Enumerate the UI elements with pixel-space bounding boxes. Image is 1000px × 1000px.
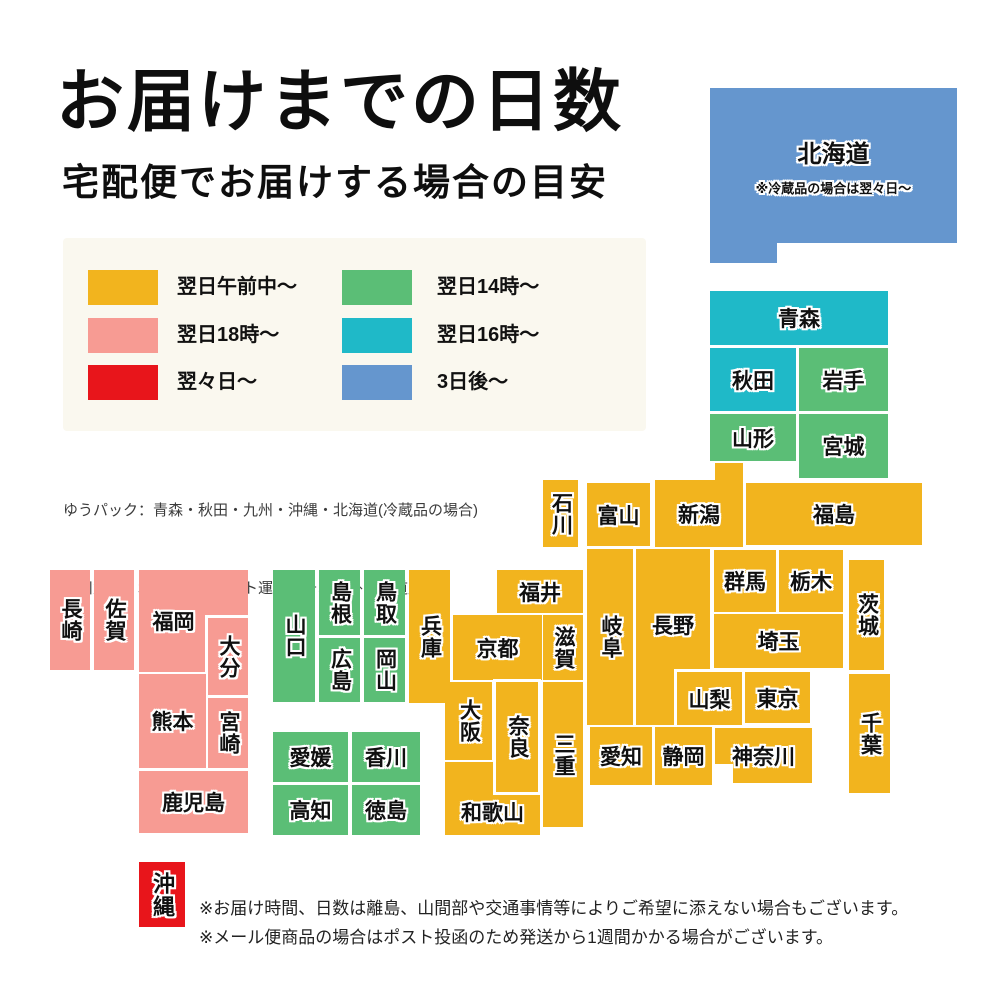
delivery-days-infographic: お届けまでの日数 宅配便でお届けする場合の目安 翌日午前中〜翌日18時〜翌々日〜… xyxy=(0,0,1000,1000)
pref-block-hyogo: 兵庫 xyxy=(409,570,450,703)
pref-block-tokushima: 徳島 xyxy=(352,785,420,835)
pref-label-kumamoto: 熊本 xyxy=(152,706,194,736)
pref-block-nara: 奈良 xyxy=(493,679,541,795)
pref-label-fukui: 福井 xyxy=(519,577,561,607)
pref-label-osaka: 大阪 xyxy=(454,699,484,743)
pref-block-fukushima: 福島 xyxy=(746,483,922,545)
japan-map: 北海道※冷蔵品の場合は翌々日〜青森秋田岩手山形宮城新潟石川富山福島福井岐阜長野群… xyxy=(0,0,1000,1000)
pref-block-miyagi: 宮城 xyxy=(799,414,888,478)
pref-block-okinawa: 沖縄 xyxy=(139,862,185,927)
footer-note-line: ※メール便商品の場合はポスト投函のため発送から1週間かかる場合がございます。 xyxy=(199,923,908,952)
pref-label-ibaraki: 茨城 xyxy=(852,593,882,637)
pref-label-yamanashi: 山梨 xyxy=(689,684,731,714)
pref-block-shizuoka: 静岡 xyxy=(655,727,712,785)
pref-label-iwate: 岩手 xyxy=(823,365,865,395)
pref-block-ehime: 愛媛 xyxy=(273,732,348,782)
pref-block-hokkaido: 北海道※冷蔵品の場合は翌々日〜 xyxy=(710,88,957,243)
pref-label-kagawa: 香川 xyxy=(365,742,407,772)
pref-label-miyagi: 宮城 xyxy=(823,431,865,461)
pref-label-okinawa: 沖縄 xyxy=(146,872,178,918)
pref-block-mie: 三重 xyxy=(543,682,583,827)
pref-block-niigata: 新潟 xyxy=(655,480,743,547)
pref-label-niigata: 新潟 xyxy=(678,499,720,529)
pref-label-tokushima: 徳島 xyxy=(365,795,407,825)
pref-block-toyama: 富山 xyxy=(587,483,650,546)
pref-block-chiba: 千葉 xyxy=(849,674,890,793)
pref-label-mie: 三重 xyxy=(548,733,578,777)
pref-label-kagoshima: 鹿児島 xyxy=(162,787,225,817)
pref-block-kochi: 高知 xyxy=(273,785,348,835)
pref-label-tochigi: 栃木 xyxy=(790,566,832,596)
pref-block-hiroshima: 広島 xyxy=(319,638,360,702)
pref-label-hokkaido: 北海道 xyxy=(798,134,870,169)
pref-block-okayama: 岡山 xyxy=(364,638,405,702)
pref-label-tottori: 鳥取 xyxy=(370,581,400,625)
pref-block-yamanashi: 山梨 xyxy=(674,669,745,728)
pref-block-osaka: 大阪 xyxy=(445,682,492,760)
pref-label-ehime: 愛媛 xyxy=(290,742,332,772)
pref-block-ibaraki: 茨城 xyxy=(849,560,884,670)
pref-kanagawa-sea-notch xyxy=(715,764,733,783)
pref-block-iwate: 岩手 xyxy=(799,348,888,411)
pref-label-saga: 佐賀 xyxy=(99,598,129,642)
pref-label-hyogo: 兵庫 xyxy=(415,615,445,659)
pref-note-hokkaido: ※冷蔵品の場合は翌々日〜 xyxy=(756,178,912,197)
pref-label-hiroshima: 広島 xyxy=(325,648,355,692)
pref-label-kyoto: 京都 xyxy=(477,633,519,663)
pref-block-tottori: 鳥取 xyxy=(364,570,405,635)
pref-label-kochi: 高知 xyxy=(290,795,332,825)
footer-notes: ※お届け時間、日数は離島、山間部や交通事情等によりご希望に添えない場合もございま… xyxy=(199,894,908,952)
pref-block-oita: 大分 xyxy=(205,615,251,698)
pref-block-nagasaki: 長崎 xyxy=(50,570,90,670)
pref-label-shiga: 滋賀 xyxy=(548,626,578,670)
pref-block-kyoto: 京都 xyxy=(453,615,542,680)
pref-label-chiba: 千葉 xyxy=(855,712,885,756)
pref-block-kagoshima: 鹿児島 xyxy=(139,771,248,833)
pref-block-aomori: 青森 xyxy=(710,291,888,345)
pref-label-oita: 大分 xyxy=(213,635,243,679)
footer-note-line: ※お届け時間、日数は離島、山間部や交通事情等によりご希望に添えない場合もございま… xyxy=(199,894,908,923)
pref-block-fukui: 福井 xyxy=(497,570,583,613)
pref-block-gifu: 岐阜 xyxy=(587,549,633,725)
pref-block-tochigi: 栃木 xyxy=(779,550,843,612)
pref-label-tokyo: 東京 xyxy=(757,683,799,713)
pref-label-fukushima: 福島 xyxy=(813,499,855,529)
pref-label-aomori: 青森 xyxy=(778,303,820,333)
pref-label-gifu: 岐阜 xyxy=(595,615,625,659)
pref-label-saitama: 埼玉 xyxy=(758,626,800,656)
pref-label-akita: 秋田 xyxy=(732,365,774,395)
pref-label-nara: 奈良 xyxy=(502,715,532,759)
pref-label-yamagata: 山形 xyxy=(732,423,774,453)
pref-block-akita: 秋田 xyxy=(710,348,796,411)
pref-block-saga: 佐賀 xyxy=(94,570,134,670)
pref-block-yamaguchi: 山口 xyxy=(273,570,315,702)
pref-label-gunma: 群馬 xyxy=(724,566,766,596)
pref-label-okayama: 岡山 xyxy=(370,648,400,692)
pref-label-fukuoka: 福岡 xyxy=(153,606,195,636)
pref-block-tokyo: 東京 xyxy=(745,672,810,723)
pref-label-shimane: 島根 xyxy=(325,581,355,625)
pref-label-nagano: 長野 xyxy=(652,610,694,640)
pref-label-shizuoka: 静岡 xyxy=(663,741,705,771)
pref-label-wakayama: 和歌山 xyxy=(461,797,524,827)
pref-block-saitama: 埼玉 xyxy=(714,614,843,668)
pref-label-ishikawa: 石川 xyxy=(546,492,576,536)
pref-block-yamagata: 山形 xyxy=(710,414,796,461)
pref-label-aichi: 愛知 xyxy=(600,741,642,771)
pref-label-miyazaki: 宮崎 xyxy=(213,711,243,755)
pref-block-shiga: 滋賀 xyxy=(543,615,583,680)
pref-block-ishikawa: 石川 xyxy=(543,480,578,547)
pref-label-toyama: 富山 xyxy=(598,500,640,530)
pref-block-miyazaki: 宮崎 xyxy=(208,698,248,768)
pref-label-yamaguchi: 山口 xyxy=(279,614,309,658)
pref-label-nagasaki: 長崎 xyxy=(55,598,85,642)
pref-block-gunma: 群馬 xyxy=(714,550,776,612)
pref-block-aichi: 愛知 xyxy=(590,727,652,785)
pref-block-kagawa: 香川 xyxy=(352,732,420,782)
pref-label-kanagawa: 神奈川 xyxy=(732,741,795,771)
pref-block-shimane: 島根 xyxy=(319,570,360,635)
pref-block-kumamoto: 熊本 xyxy=(139,674,206,768)
